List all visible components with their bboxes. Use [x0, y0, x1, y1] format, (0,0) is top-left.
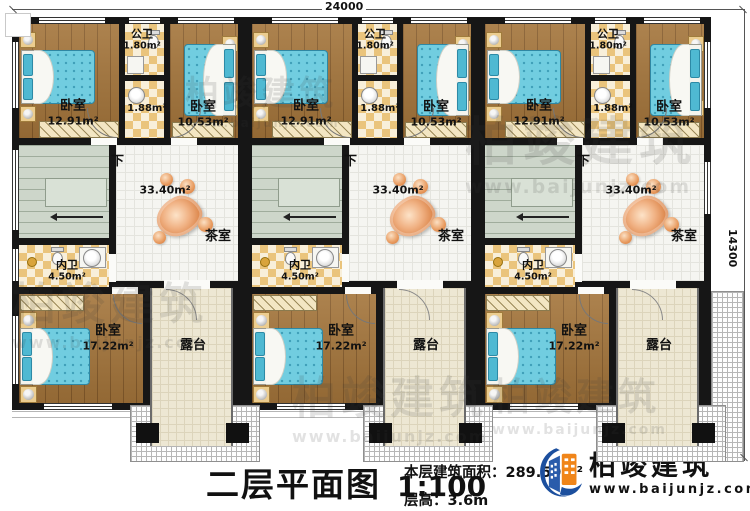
room-name: 内卫 [48, 259, 86, 272]
room-name: 卧室 [548, 324, 599, 340]
room-name: 露台 [413, 338, 439, 354]
room-area: 1.88m² [127, 103, 166, 115]
eaves-strip [478, 411, 598, 418]
window [644, 17, 700, 24]
right-dimension-value: 14300 [726, 226, 739, 270]
window [704, 162, 711, 214]
room-area: 33.40m² [139, 183, 190, 196]
door-opening [575, 254, 582, 282]
pillow [690, 49, 700, 78]
door-opening [342, 254, 349, 282]
door-opening [637, 138, 663, 145]
room-area: 17.22m² [82, 339, 133, 352]
room-bedroom-back: 卧室 17.22m² [252, 294, 376, 403]
window [704, 42, 711, 108]
terrace-door-opening [630, 280, 676, 289]
room-name: 公卫 [356, 28, 394, 41]
room-bath-anteroom: 1.88m² [358, 81, 397, 138]
room-tea-room: 33.40m² 茶室 [116, 145, 238, 281]
room-area: 1.80m² [356, 41, 394, 52]
room-area: 1.88m² [593, 103, 632, 115]
window [411, 17, 467, 24]
room-name: 露台 [180, 338, 206, 354]
wall-ledge [5, 13, 31, 37]
room-area: 12.91m² [280, 114, 331, 127]
room-area: 1.88m² [360, 103, 399, 115]
window [272, 17, 338, 24]
room-bedroom-front-right: 卧室 10.53m² [636, 24, 704, 138]
room-area: 1.80m² [123, 41, 161, 52]
room-private-bath: 内卫 4.50m² [19, 245, 109, 287]
terrace-pillar [692, 423, 715, 443]
window [595, 17, 626, 24]
double-bed [21, 50, 95, 104]
stairs-down-label: 下 [344, 150, 357, 169]
stairwell [252, 145, 342, 238]
room-area: 10.53m² [410, 115, 461, 128]
door-opening [112, 287, 138, 294]
room-name: 卧室 [643, 100, 694, 116]
double-bed [487, 50, 561, 104]
terrace-pillar [369, 423, 392, 443]
stair-landing [278, 178, 340, 207]
sink [128, 87, 145, 104]
terrace-pillar [459, 423, 482, 443]
room-area: 33.40m² [605, 183, 656, 196]
floor-plan-screen: 卧室 12.91m² 公卫 1.80m² 1.88m² [0, 0, 750, 511]
room-name: 茶室 [438, 229, 464, 245]
terrace-pillar [226, 423, 249, 443]
room-area: 4.50m² [514, 272, 552, 283]
stair-landing [45, 178, 107, 207]
terrace-pillar [136, 423, 159, 443]
nightstand [486, 106, 502, 122]
room-name: 卧室 [177, 100, 228, 116]
room-area: 12.91m² [513, 114, 564, 127]
nightstand [486, 32, 502, 48]
pillow [488, 357, 498, 381]
room-tea-room: 33.40m² 茶室 [582, 145, 704, 281]
terrace-pillar [602, 423, 625, 443]
room-name: 卧室 [315, 324, 366, 340]
room-name: 卧室 [280, 99, 331, 115]
top-dimension-line [12, 9, 744, 10]
window [362, 17, 393, 24]
room-private-bath: 内卫 4.50m² [252, 245, 342, 287]
room-public-bath: 公卫 1.80m² [591, 24, 630, 75]
floor-drain [27, 257, 37, 267]
wardrobe [253, 295, 317, 311]
window [510, 403, 578, 410]
nightstand [253, 312, 270, 329]
pillow [22, 357, 32, 381]
nightstand [253, 386, 270, 403]
nightstand [253, 106, 269, 122]
window [277, 403, 345, 410]
nightstand [20, 386, 37, 403]
window [44, 403, 112, 410]
room-name: 公卫 [123, 28, 161, 41]
nightstand [20, 106, 36, 122]
room-area: 4.50m² [281, 272, 319, 283]
room-bedroom-front-right: 卧室 10.53m² [170, 24, 238, 138]
pillow [256, 78, 266, 101]
room-bath-anteroom: 1.88m² [591, 81, 630, 138]
window [12, 42, 19, 108]
room-name: 茶室 [671, 229, 697, 245]
stairs-down-label: 下 [111, 150, 124, 169]
door-opening [109, 254, 116, 282]
room-public-bath: 公卫 1.80m² [125, 24, 164, 75]
door-swing-arc [346, 295, 375, 324]
eaves-strip [12, 411, 132, 418]
room-bedroom-front-left: 卧室 12.91m² [19, 24, 119, 138]
pillow [457, 49, 467, 78]
door-opening [557, 138, 583, 145]
room-public-bath: 公卫 1.80m² [358, 24, 397, 75]
door-swing-arc [113, 295, 142, 324]
pillow [23, 78, 33, 101]
stairwell [485, 145, 575, 238]
floor-plan: 卧室 12.91m² 公卫 1.80m² 1.88m² [0, 0, 750, 470]
room-name: 卧室 [82, 324, 133, 340]
stair-landing [511, 178, 573, 207]
top-dimension-value: 24000 [322, 0, 366, 13]
nightstand [20, 312, 37, 329]
door-swing-arc [579, 295, 608, 324]
window [129, 17, 160, 24]
brand-url: www.baijunjz.com [589, 483, 750, 496]
door-opening [404, 138, 430, 145]
vanity-counter [593, 56, 610, 74]
door-opening [578, 287, 604, 294]
window [505, 17, 571, 24]
double-bed [254, 50, 328, 104]
sink [361, 87, 378, 104]
dwelling-unit: 卧室 12.91m² 公卫 1.80m² 1.88m² [245, 0, 478, 470]
room-name: 露台 [646, 338, 672, 354]
window [12, 316, 19, 384]
tea-stool [619, 231, 632, 244]
floor-drain [260, 257, 270, 267]
vanity-counter [360, 56, 377, 74]
pillow [488, 332, 498, 356]
room-area: 10.53m² [643, 115, 694, 128]
dwelling-unit: 卧室 12.91m² 公卫 1.80m² 1.88m² [478, 0, 711, 470]
eaves-strip [245, 411, 365, 418]
room-area: 1.80m² [589, 41, 627, 52]
wardrobe [20, 295, 84, 311]
door-opening [324, 138, 350, 145]
room-area: 4.50m² [48, 272, 86, 283]
door-opening [91, 138, 117, 145]
double-bed [20, 328, 90, 385]
sink [594, 87, 611, 104]
window [12, 150, 19, 230]
pillow [255, 357, 265, 381]
nightstand [253, 32, 269, 48]
room-name: 卧室 [410, 100, 461, 116]
room-name: 公卫 [589, 28, 627, 41]
window [178, 17, 234, 24]
wardrobe [486, 295, 550, 311]
pillow [489, 78, 499, 101]
stairs-down-label: 下 [577, 150, 590, 169]
room-name: 卧室 [513, 99, 564, 115]
stair-direction-arrow [523, 216, 569, 218]
room-bedroom-back: 卧室 17.22m² [485, 294, 609, 403]
nightstand [486, 386, 503, 403]
room-name: 内卫 [514, 259, 552, 272]
room-bedroom-front-left: 卧室 12.91m² [485, 24, 585, 138]
plan-title: 二层平面图 [206, 458, 381, 506]
terrace-door-opening [164, 280, 210, 289]
room-name: 茶室 [205, 229, 231, 245]
room-bedroom-back: 卧室 17.22m² [19, 294, 143, 403]
tea-stool [386, 231, 399, 244]
room-name: 卧室 [47, 99, 98, 115]
tea-stool [153, 231, 166, 244]
room-area: 17.22m² [548, 339, 599, 352]
floor-height-label: 层高： [404, 493, 448, 509]
room-private-bath: 内卫 4.50m² [485, 245, 575, 287]
brand-logo-icon [536, 446, 582, 502]
pillow [224, 49, 234, 78]
right-dimension-line [744, 9, 745, 461]
vanity-counter [127, 56, 144, 74]
room-area: 17.22m² [315, 339, 366, 352]
area-label: 本层建筑面积： [404, 465, 506, 481]
room-bath-anteroom: 1.88m² [125, 81, 164, 138]
room-bedroom-front-right: 卧室 10.53m² [403, 24, 471, 138]
room-name: 内卫 [281, 259, 319, 272]
room-bedroom-front-left: 卧室 12.91m² [252, 24, 352, 138]
nightstand [486, 312, 503, 329]
room-area: 10.53m² [177, 115, 228, 128]
double-bed [486, 328, 556, 385]
double-bed [253, 328, 323, 385]
window [39, 17, 105, 24]
pillow [22, 332, 32, 356]
room-area: 12.91m² [47, 114, 98, 127]
door-opening [171, 138, 197, 145]
pillow [255, 332, 265, 356]
stair-direction-arrow [57, 216, 103, 218]
pillow [256, 54, 266, 77]
floor-drain [493, 257, 503, 267]
stairwell [19, 145, 109, 238]
floor-height-value: 3.6m [448, 493, 489, 509]
window [12, 249, 19, 281]
pillow [23, 54, 33, 77]
pillow [489, 54, 499, 77]
door-opening [345, 287, 371, 294]
room-area: 33.40m² [372, 183, 423, 196]
room-tea-room: 33.40m² 茶室 [349, 145, 471, 281]
terrace-door-opening [397, 280, 443, 289]
stair-direction-arrow [290, 216, 336, 218]
dwelling-unit: 卧室 12.91m² 公卫 1.80m² 1.88m² [12, 0, 245, 470]
